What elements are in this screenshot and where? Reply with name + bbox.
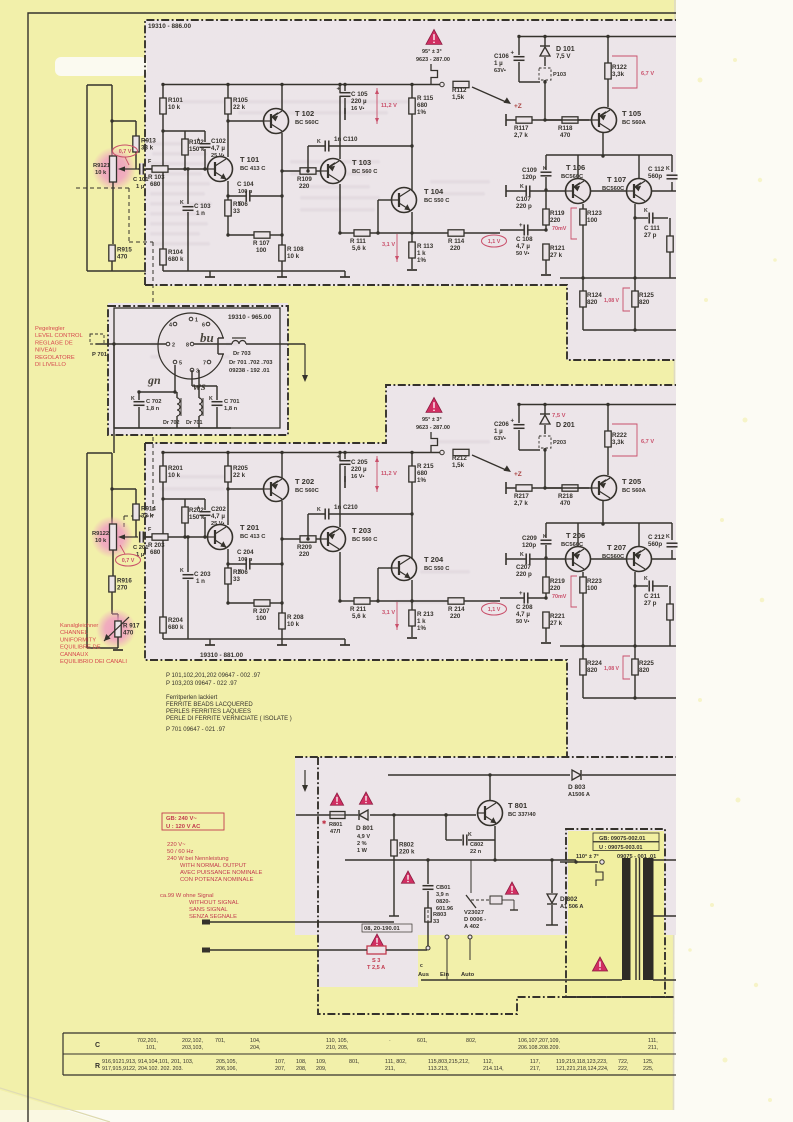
svg-text:A1 506 A: A1 506 A	[560, 904, 583, 910]
svg-text:C 111: C 111	[644, 225, 660, 232]
svg-text:R 207: R 207	[253, 608, 270, 615]
svg-text:R221: R221	[550, 613, 565, 620]
svg-text:R124: R124	[587, 292, 602, 299]
svg-text:50 / 60 Hz: 50 / 60 Hz	[167, 849, 194, 855]
svg-text:33 k: 33 k	[141, 145, 154, 152]
svg-text:K: K	[209, 396, 213, 402]
svg-text:ca.99 W ohne Signal: ca.99 W ohne Signal	[160, 893, 214, 899]
svg-text:P 701: P 701	[92, 352, 108, 358]
svg-text:R106: R106	[233, 201, 248, 208]
svg-text:Auto: Auto	[461, 972, 475, 978]
svg-text:109,: 109,	[316, 1059, 327, 1065]
svg-text:917,915,9122, 204.102. 202.: 917,915,9122, 204.102. 202. 203.	[102, 1066, 183, 1072]
svg-text:D 803: D 803	[568, 784, 586, 791]
svg-text:220: 220	[450, 245, 461, 252]
svg-text:4,7 µ: 4,7 µ	[516, 611, 530, 618]
svg-text:C209: C209	[522, 535, 537, 542]
svg-text:112,: 112,	[483, 1059, 494, 1065]
svg-text:820: 820	[639, 299, 650, 306]
svg-text:C 701: C 701	[224, 399, 240, 405]
svg-text:R209: R209	[297, 544, 312, 551]
svg-text:22 k: 22 k	[233, 472, 246, 479]
svg-text:117,: 117,	[530, 1059, 541, 1065]
svg-text:2,7 k: 2,7 k	[514, 132, 528, 139]
svg-text:19310 - 965.00: 19310 - 965.00	[228, 314, 271, 321]
svg-text:204,: 204,	[250, 1045, 261, 1051]
svg-text:6,7 V: 6,7 V	[641, 439, 654, 445]
svg-text:11,2 V: 11,2 V	[381, 471, 397, 477]
svg-text:T 203: T 203	[352, 526, 371, 535]
svg-text:802,: 802,	[466, 1038, 477, 1044]
svg-text:1 k: 1 k	[417, 618, 426, 625]
svg-text:70mV: 70mV	[552, 594, 567, 600]
svg-text:bu: bu	[200, 330, 214, 345]
svg-text:111,: 111,	[648, 1038, 658, 1044]
svg-text:K: K	[317, 139, 321, 145]
svg-text:111, 802,: 111, 802,	[385, 1059, 407, 1065]
svg-text:U : 120 V AC: U : 120 V AC	[166, 824, 201, 830]
svg-text:0,7 V: 0,7 V	[122, 558, 135, 564]
svg-text:209,: 209,	[316, 1066, 327, 1072]
svg-text:Aus: Aus	[418, 972, 429, 978]
svg-text:702,201,: 702,201,	[137, 1038, 158, 1044]
svg-text:K: K	[131, 396, 135, 402]
svg-text:220: 220	[550, 217, 561, 224]
svg-text:916,9121,913, 914,104,101, 20: 916,9121,913, 914,104,101, 201, 103,	[102, 1059, 194, 1065]
svg-text:K: K	[666, 534, 670, 540]
svg-text:R 115: R 115	[417, 95, 434, 102]
svg-text:722,: 722,	[618, 1059, 629, 1065]
svg-text:1,08 V: 1,08 V	[604, 298, 620, 304]
svg-text:S 3: S 3	[372, 958, 380, 964]
svg-text:C 201: C 201	[133, 545, 149, 551]
svg-text:4,7 µ: 4,7 µ	[516, 243, 530, 250]
svg-text:R 114: R 114	[448, 238, 465, 245]
svg-text:P103: P103	[553, 72, 566, 78]
svg-text:R 211: R 211	[350, 606, 367, 613]
svg-text:Ferritperlen lackiert: Ferritperlen lackiert	[166, 695, 218, 701]
svg-text:680 k: 680 k	[168, 256, 184, 263]
svg-text:C106: C106	[494, 53, 509, 60]
svg-text:100: 100	[587, 217, 598, 224]
svg-text:19310 - 886.00: 19310 - 886.00	[148, 23, 191, 30]
svg-text:C 105: C 105	[351, 91, 368, 98]
svg-text:27 k: 27 k	[550, 620, 563, 627]
svg-text:33: 33	[233, 576, 240, 583]
svg-text:120p: 120p	[522, 174, 536, 181]
svg-text:P203: P203	[553, 440, 566, 446]
svg-text:R 108: R 108	[287, 246, 304, 253]
svg-text:BC 560 C: BC 560 C	[352, 169, 378, 175]
svg-text:1: 1	[195, 318, 198, 324]
svg-text:5,6 k: 5,6 k	[352, 613, 366, 620]
svg-text:P 101,102,201,202 09647 -: P 101,102,201,202 09647 - 002 .97	[166, 673, 261, 679]
svg-text:+Z: +Z	[514, 103, 522, 110]
svg-text:Dr 702: Dr 702	[163, 420, 179, 426]
svg-text:T 105: T 105	[622, 109, 641, 118]
svg-text:240 W bei Nennleistung: 240 W bei Nennleistung	[167, 856, 229, 862]
svg-text:EQUILIBRE DE: EQUILIBRE DE	[60, 645, 101, 651]
svg-text:202,102,: 202,102,	[182, 1038, 203, 1044]
svg-text:R801: R801	[329, 822, 342, 828]
svg-text:BC560C: BC560C	[561, 542, 584, 548]
svg-text:D 802: D 802	[560, 896, 578, 903]
svg-text:220 µ: 220 µ	[351, 98, 367, 105]
svg-text:1,1 V: 1,1 V	[488, 239, 501, 245]
svg-text:V23027: V23027	[464, 910, 484, 916]
svg-text:FERRITE BEADS LACQUERED: FERRITE BEADS LACQUERED	[166, 702, 253, 708]
svg-text:Dr 701: Dr 701	[186, 420, 202, 426]
svg-text:Ein: Ein	[440, 972, 449, 978]
svg-text:K: K	[520, 184, 524, 190]
svg-text:LEVEL CONTROL: LEVEL CONTROL	[35, 333, 84, 339]
svg-text:33 k: 33 k	[141, 513, 154, 520]
svg-text:113.213,: 113.213,	[428, 1066, 449, 1072]
svg-text:1 µ: 1 µ	[136, 552, 144, 558]
svg-text:1%: 1%	[417, 477, 426, 484]
svg-text:C102: C102	[211, 138, 226, 145]
svg-text:206,106,: 206,106,	[216, 1066, 237, 1072]
svg-text:D 801: D 801	[356, 825, 374, 832]
svg-text:R219: R219	[550, 578, 565, 585]
svg-text:C 204: C 204	[237, 549, 254, 556]
svg-text:205,105,: 205,105,	[216, 1059, 237, 1065]
svg-text:+: +	[337, 455, 341, 461]
svg-text:Dr 701 .702 .703: Dr 701 .702 .703	[229, 360, 273, 366]
svg-text:C202: C202	[211, 506, 226, 513]
svg-text:+: +	[197, 138, 201, 144]
svg-text:R204: R204	[168, 617, 183, 624]
svg-text:95° ± 3°: 95° ± 3°	[422, 417, 442, 423]
svg-text:1%: 1%	[417, 257, 426, 264]
svg-text:3,1 V: 3,1 V	[382, 242, 395, 248]
svg-text:+: +	[511, 51, 515, 57]
svg-text:K: K	[644, 576, 648, 582]
svg-text:C 212: C 212	[648, 534, 665, 541]
svg-text:C 108: C 108	[516, 236, 533, 243]
svg-text:Kanalgleichner: Kanalgleichner	[60, 623, 98, 629]
svg-text:T 201: T 201	[240, 523, 259, 532]
svg-text:gn: gn	[147, 373, 161, 387]
svg-text:560p: 560p	[648, 541, 662, 548]
svg-text:5: 5	[179, 361, 182, 367]
svg-text:+: +	[519, 223, 523, 229]
svg-text:T 207: T 207	[607, 543, 626, 552]
svg-text:D 201: D 201	[556, 422, 575, 429]
svg-text:0820-: 0820-	[436, 899, 450, 905]
svg-text:220 p: 220 p	[516, 203, 532, 210]
svg-text:470: 470	[560, 132, 571, 139]
svg-text:R 208: R 208	[287, 614, 304, 621]
svg-text:BC 413 C: BC 413 C	[240, 166, 266, 172]
svg-text:BC560C: BC560C	[561, 174, 584, 180]
svg-text:BC 550 C: BC 550 C	[424, 566, 450, 572]
svg-text:R 107: R 107	[253, 240, 270, 247]
svg-text:470: 470	[560, 500, 571, 507]
svg-text:100 p: 100 p	[238, 557, 253, 563]
svg-text:220 k: 220 k	[399, 849, 415, 856]
svg-text:R 103: R 103	[148, 174, 165, 181]
svg-text:47Л: 47Л	[330, 829, 340, 835]
svg-text:3,9 n: 3,9 n	[436, 892, 449, 898]
svg-text:601,: 601,	[417, 1038, 428, 1044]
svg-text:217,: 217,	[530, 1066, 541, 1072]
svg-text:R104: R104	[168, 249, 183, 256]
svg-text:T 2,5 A: T 2,5 A	[367, 965, 385, 971]
svg-text:R122: R122	[612, 64, 627, 71]
svg-text:220: 220	[450, 613, 461, 620]
svg-text:100: 100	[256, 247, 267, 254]
svg-text:R803: R803	[433, 912, 446, 918]
svg-text:SENZA SEGNALE: SENZA SEGNALE	[189, 914, 237, 920]
svg-text:214.114,: 214.114,	[483, 1066, 504, 1072]
svg-text:100 p: 100 p	[238, 189, 253, 195]
svg-text:PERLES FERRITES LAQUEES: PERLES FERRITES LAQUEES	[166, 709, 251, 715]
svg-text:·: ·	[389, 1038, 391, 1044]
svg-text:27 k: 27 k	[550, 252, 563, 259]
svg-text:125,: 125,	[643, 1059, 654, 1065]
svg-text:4,7 µ: 4,7 µ	[211, 145, 225, 152]
svg-text:WITH NORMAL OUTPUT: WITH NORMAL OUTPUT	[180, 863, 247, 869]
svg-text:70mV: 70mV	[552, 226, 567, 232]
svg-text:7,5 V: 7,5 V	[552, 413, 566, 419]
svg-text:Pegelregler: Pegelregler	[35, 326, 65, 332]
svg-text:680: 680	[417, 470, 428, 477]
svg-text:560p: 560p	[648, 173, 662, 180]
svg-text:R 203: R 203	[148, 542, 165, 549]
svg-text:C 203: C 203	[194, 571, 211, 578]
svg-text:10 k: 10 k	[168, 472, 181, 479]
svg-text:3,1 V: 3,1 V	[382, 610, 395, 616]
svg-text:REGOLATORE: REGOLATORE	[35, 355, 75, 361]
svg-text:08, 20-190.01: 08, 20-190.01	[364, 926, 401, 932]
svg-text:10 k: 10 k	[95, 538, 107, 544]
svg-text:R117: R117	[514, 125, 529, 132]
svg-text:K: K	[520, 552, 524, 558]
svg-text:R 214: R 214	[448, 606, 465, 613]
svg-text:R224: R224	[587, 660, 602, 667]
svg-text:222,: 222,	[618, 1066, 629, 1072]
svg-text:211,: 211,	[385, 1066, 396, 1072]
svg-text:R118: R118	[558, 125, 573, 132]
svg-text:120p: 120p	[522, 542, 536, 549]
svg-text:C206: C206	[494, 421, 509, 428]
svg-text:T 106: T 106	[566, 163, 585, 172]
svg-text:16 V▪: 16 V▪	[351, 106, 365, 112]
svg-text:+: +	[197, 506, 201, 512]
svg-text:208,: 208,	[296, 1066, 307, 1072]
svg-text:K: K	[644, 208, 648, 214]
svg-text:EQUILIBRIO DEI CANALI: EQUILIBRIO DEI CANALI	[60, 659, 127, 665]
svg-text:U : 09075-003.01: U : 09075-003.01	[599, 845, 643, 851]
svg-text:+Z: +Z	[514, 471, 522, 478]
svg-text:BC 560 C: BC 560 C	[352, 537, 378, 543]
svg-text:C 702: C 702	[146, 399, 161, 405]
svg-text:T 101: T 101	[240, 155, 259, 164]
svg-text:R217: R217	[514, 493, 529, 500]
svg-text:T 102: T 102	[295, 109, 314, 118]
svg-text:95° ± 3°: 95° ± 3°	[422, 49, 442, 55]
svg-text:BC 560C: BC 560C	[295, 488, 320, 494]
svg-text:9623 - 287.00: 9623 - 287.00	[416, 425, 450, 431]
svg-text:C 208: C 208	[516, 604, 533, 611]
svg-text:106,107,207,109,: 106,107,207,109,	[518, 1038, 560, 1044]
svg-text:C 101: C 101	[133, 177, 149, 183]
svg-text:+: +	[519, 591, 523, 597]
svg-text:GB: 09075-002.01: GB: 09075-002.01	[599, 836, 645, 842]
svg-text:22 k: 22 k	[233, 104, 246, 111]
svg-text:820: 820	[639, 667, 650, 674]
svg-text:P 103,203 0: P 103,203 09647 - 022 .97	[166, 681, 238, 687]
svg-text:CON POTENZA NOMINALE: CON POTENZA NOMINALE	[180, 877, 254, 883]
svg-text:11,2 V: 11,2 V	[381, 103, 397, 109]
svg-text:7,5 V: 7,5 V	[556, 53, 571, 60]
svg-text:220 p: 220 p	[516, 571, 532, 578]
svg-text:4,9 V: 4,9 V	[357, 834, 370, 840]
svg-text:K: K	[666, 166, 670, 172]
svg-text:R123: R123	[587, 210, 602, 217]
svg-text:9623 - 287.00: 9623 - 287.00	[416, 57, 450, 63]
svg-text:CANNAUX: CANNAUX	[60, 652, 88, 658]
svg-text:T 202: T 202	[295, 477, 314, 486]
svg-text:R119: R119	[550, 210, 565, 217]
svg-text:100: 100	[587, 585, 598, 592]
svg-text:1,08 V: 1,08 V	[604, 666, 620, 672]
svg-text:119,219,118,123,223,: 119,219,118,123,223,	[556, 1059, 608, 1065]
svg-text:10 k: 10 k	[168, 104, 181, 111]
svg-text:UNIFORMITY: UNIFORMITY	[60, 637, 96, 643]
svg-text:10 k: 10 k	[287, 621, 300, 628]
svg-text:R205: R205	[233, 465, 248, 472]
svg-text:206.108.208.209.: 206.108.208.209.	[518, 1045, 560, 1051]
svg-text:+: +	[337, 87, 341, 93]
svg-text:1,8 n: 1,8 n	[146, 406, 160, 412]
svg-text:5,6 k: 5,6 k	[352, 245, 366, 252]
svg-text:R 113: R 113	[417, 243, 434, 250]
svg-text:1,5k: 1,5k	[452, 94, 465, 101]
svg-text:K: K	[543, 534, 547, 540]
svg-text:50 V▪: 50 V▪	[516, 619, 530, 625]
svg-text:K: K	[543, 166, 547, 172]
svg-text:GB: 240 V~: GB: 240 V~	[166, 816, 197, 822]
svg-text:16 V▪: 16 V▪	[351, 474, 365, 480]
svg-text:1n C110: 1n C110	[334, 136, 358, 143]
svg-text:6: 6	[202, 323, 205, 329]
svg-text:207,: 207,	[275, 1066, 286, 1072]
svg-text:R 215: R 215	[417, 463, 434, 470]
svg-text:22 n: 22 n	[470, 849, 482, 855]
svg-text:27 p: 27 p	[644, 600, 657, 607]
svg-text:63V▪: 63V▪	[494, 68, 506, 74]
svg-text:7: 7	[203, 361, 206, 367]
svg-text:A 402: A 402	[464, 924, 479, 930]
svg-text:210, 205,: 210, 205,	[326, 1045, 349, 1051]
svg-text:R9121: R9121	[93, 163, 111, 169]
svg-text:K: K	[468, 832, 472, 838]
svg-text:T 204: T 204	[424, 555, 444, 564]
svg-text:R206: R206	[233, 569, 248, 576]
svg-text:BC 337/40: BC 337/40	[508, 812, 536, 818]
svg-text:680: 680	[150, 181, 161, 188]
svg-text:27 p: 27 p	[644, 232, 657, 239]
svg-text:680 k: 680 k	[168, 624, 184, 631]
svg-text:63V▪: 63V▪	[494, 436, 506, 442]
svg-text:680: 680	[417, 102, 428, 109]
svg-text:R222: R222	[612, 432, 627, 439]
svg-text:104,: 104,	[250, 1038, 261, 1044]
svg-text:C109: C109	[522, 167, 537, 174]
svg-text:1 µ: 1 µ	[136, 184, 144, 190]
svg-text:K: K	[317, 507, 321, 513]
svg-text:1 n: 1 n	[196, 578, 205, 585]
svg-text:220: 220	[299, 183, 310, 190]
svg-text:R125: R125	[639, 292, 654, 299]
svg-text:220 µ: 220 µ	[351, 466, 367, 473]
svg-text:PERLE DI FERRITE VERNICIATE: PERLE DI FERRITE VERNICIATE ( ISOLATE )	[166, 716, 292, 722]
svg-text:801,: 801,	[349, 1059, 360, 1065]
svg-text:8: 8	[186, 343, 189, 349]
svg-text:T 206: T 206	[566, 531, 585, 540]
svg-text:1n C210: 1n C210	[334, 504, 358, 511]
svg-text:WITHOUT SIGNAL: WITHOUT SIGNAL	[189, 900, 240, 906]
svg-text:1 µ: 1 µ	[494, 428, 503, 435]
svg-text:1 k: 1 k	[417, 250, 426, 257]
svg-text:T 104: T 104	[424, 187, 444, 196]
svg-text:BC 550 C: BC 550 C	[424, 198, 450, 204]
svg-text:R 111: R 111	[350, 238, 366, 245]
svg-text:T 107: T 107	[607, 175, 626, 184]
svg-text:T 205: T 205	[622, 477, 641, 486]
svg-text:108,: 108,	[296, 1059, 307, 1065]
svg-text:K: K	[180, 568, 184, 574]
svg-text:CHANNEL: CHANNEL	[60, 630, 88, 636]
svg-text:115,803,215,212,: 115,803,215,212,	[428, 1059, 470, 1065]
svg-text:820: 820	[587, 667, 598, 674]
svg-text:50 V▪: 50 V▪	[516, 251, 530, 257]
svg-text:09238 - 192 .01: 09238 - 192 .01	[229, 368, 270, 374]
svg-text:R9122: R9122	[92, 531, 109, 537]
svg-text:T 103: T 103	[352, 158, 371, 167]
svg-text:203,103,: 203,103,	[182, 1045, 203, 1051]
svg-text:33: 33	[233, 208, 240, 215]
svg-text:R101: R101	[168, 97, 183, 104]
svg-text:110° ± 7°: 110° ± 7°	[576, 854, 599, 860]
svg-text:701,: 701,	[215, 1038, 226, 1044]
svg-text:BC 560C: BC 560C	[295, 120, 320, 126]
svg-text:2 %: 2 %	[357, 841, 367, 847]
svg-text:C 104: C 104	[237, 181, 254, 188]
svg-text:1,5k: 1,5k	[452, 462, 465, 469]
svg-text:110, 105,: 110, 105,	[326, 1038, 349, 1044]
svg-text:101,: 101,	[146, 1045, 157, 1051]
svg-text:R914: R914	[141, 506, 156, 513]
svg-text:R 213: R 213	[417, 611, 434, 618]
svg-text:R223: R223	[587, 578, 602, 585]
svg-text:6,7 V: 6,7 V	[641, 71, 654, 77]
svg-text:C802: C802	[470, 842, 483, 848]
svg-text:DI LIVELLO: DI LIVELLO	[35, 362, 66, 368]
svg-text:1,1 V: 1,1 V	[488, 607, 501, 613]
svg-text:0,7 V: 0,7 V	[119, 149, 132, 155]
svg-text:AVEC PUISSANCE NOMINALE: AVEC PUISSANCE NOMINALE	[180, 870, 262, 876]
svg-text:3,3k: 3,3k	[612, 439, 625, 446]
svg-text:R201: R201	[168, 465, 183, 472]
svg-text:C 211: C 211	[644, 593, 661, 600]
svg-text:REGLAGE DE: REGLAGE DE	[35, 340, 73, 346]
svg-text:225,: 225,	[643, 1066, 654, 1072]
svg-text:R212: R212	[452, 455, 467, 462]
svg-text:270: 270	[117, 585, 128, 592]
